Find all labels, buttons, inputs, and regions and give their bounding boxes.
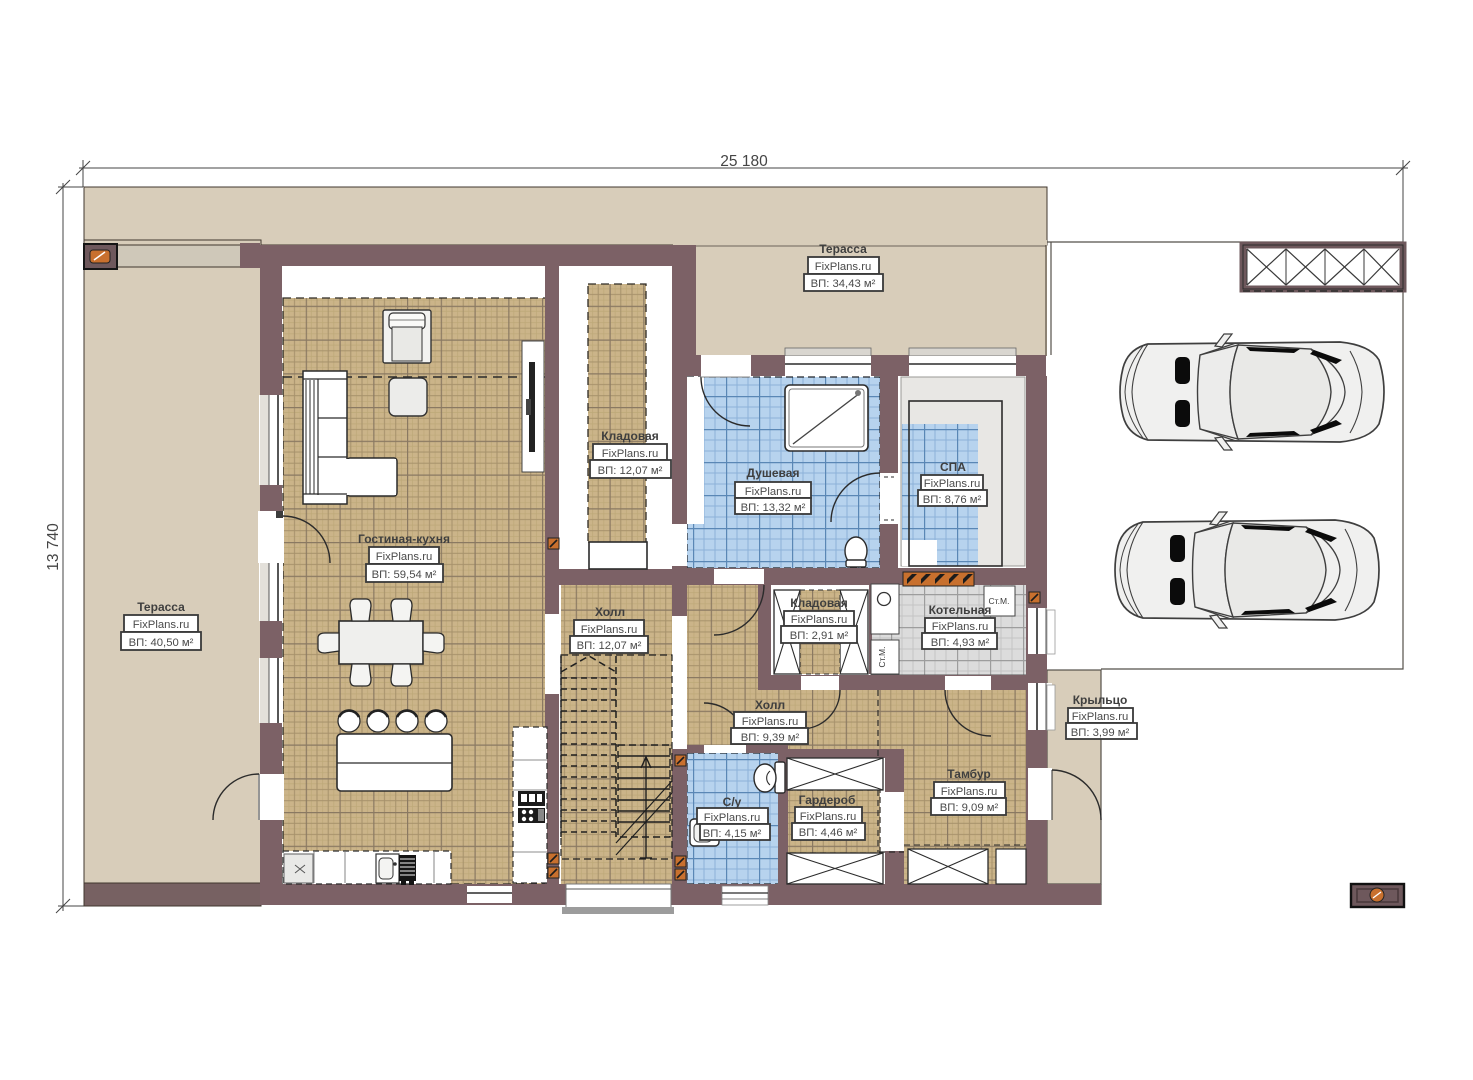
svg-text:ВП: 4,93 м²: ВП: 4,93 м² (931, 637, 990, 649)
svg-text:FixPlans.ru: FixPlans.ru (602, 448, 659, 460)
svg-text:Ст.М.: Ст.М. (877, 647, 887, 668)
svg-text:Кладовая: Кладовая (790, 596, 847, 610)
svg-text:ВП: 8,76 м²: ВП: 8,76 м² (923, 494, 982, 506)
svg-text:Холл: Холл (595, 605, 625, 619)
svg-text:FixPlans.ru: FixPlans.ru (800, 811, 857, 823)
svg-text:Терасса: Терасса (819, 242, 867, 256)
svg-text:ВП: 3,99 м²: ВП: 3,99 м² (1071, 727, 1130, 739)
svg-text:FixPlans.ru: FixPlans.ru (815, 261, 872, 273)
svg-text:ВП: 4,46 м²: ВП: 4,46 м² (799, 827, 858, 839)
svg-text:Гардероб: Гардероб (799, 793, 856, 807)
svg-text:ВП: 12,07 м²: ВП: 12,07 м² (577, 640, 642, 652)
svg-text:ВП: 2,91 м²: ВП: 2,91 м² (790, 630, 849, 642)
svg-text:25 180: 25 180 (720, 153, 768, 170)
svg-text:Душевая: Душевая (747, 466, 800, 480)
svg-text:СПА: СПА (940, 460, 966, 474)
svg-text:FixPlans.ru: FixPlans.ru (932, 621, 989, 633)
svg-text:ВП: 12,07 м²: ВП: 12,07 м² (598, 465, 663, 477)
svg-text:FixPlans.ru: FixPlans.ru (941, 786, 998, 798)
svg-text:FixPlans.ru: FixPlans.ru (1072, 711, 1129, 723)
svg-text:FixPlans.ru: FixPlans.ru (376, 551, 433, 563)
svg-text:Кладовая: Кладовая (601, 429, 658, 443)
svg-text:ВП: 40,50 м²: ВП: 40,50 м² (129, 637, 194, 649)
svg-text:ВП: 34,43 м²: ВП: 34,43 м² (811, 278, 876, 290)
svg-text:FixPlans.ru: FixPlans.ru (581, 624, 638, 636)
svg-text:Терасса: Терасса (137, 600, 185, 614)
svg-text:С/у: С/у (723, 795, 742, 809)
svg-text:ВП: 4,15 м²: ВП: 4,15 м² (703, 828, 762, 840)
svg-text:Холл: Холл (755, 698, 785, 712)
svg-text:Тамбур: Тамбур (947, 767, 991, 781)
svg-text:ВП: 9,09 м²: ВП: 9,09 м² (940, 802, 999, 814)
svg-text:FixPlans.ru: FixPlans.ru (924, 478, 981, 490)
svg-text:ВП: 9,39 м²: ВП: 9,39 м² (741, 732, 800, 744)
svg-text:FixPlans.ru: FixPlans.ru (791, 614, 848, 626)
svg-text:13 740: 13 740 (45, 523, 62, 571)
svg-text:FixPlans.ru: FixPlans.ru (742, 716, 799, 728)
svg-text:Гостиная-кухня: Гостиная-кухня (358, 532, 450, 546)
svg-text:Ст.М.: Ст.М. (989, 596, 1010, 606)
svg-text:FixPlans.ru: FixPlans.ru (745, 486, 802, 498)
svg-text:ВП: 59,54 м²: ВП: 59,54 м² (372, 569, 437, 581)
svg-text:FixPlans.ru: FixPlans.ru (704, 812, 761, 824)
svg-text:Котельная: Котельная (929, 603, 992, 617)
svg-text:ВП: 13,32 м²: ВП: 13,32 м² (741, 502, 806, 514)
svg-text:FixPlans.ru: FixPlans.ru (133, 619, 190, 631)
svg-text:Крыльцо: Крыльцо (1073, 693, 1128, 707)
